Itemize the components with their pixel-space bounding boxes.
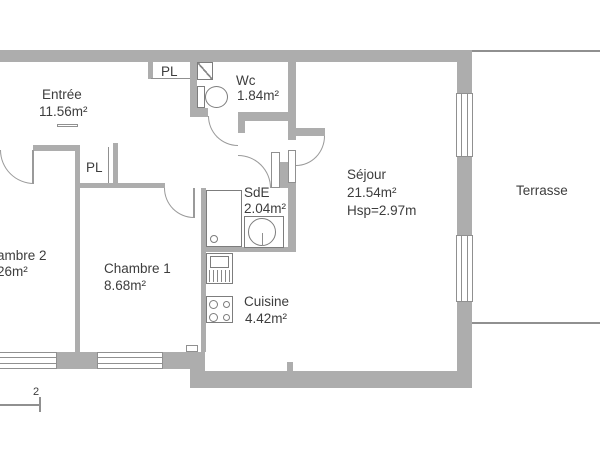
chambre1-area: 8.68m² — [104, 278, 146, 293]
toilet-tank-icon — [197, 86, 205, 108]
window-chambre2 — [0, 352, 57, 369]
entree-area: 11.56m² — [39, 104, 88, 119]
cuisine-area: 4.42m² — [245, 311, 287, 326]
sejour-ceiling-height: Hsp=2.97m — [347, 203, 416, 218]
sink-bowl-icon — [210, 256, 229, 268]
sink-drainer-icon — [209, 270, 230, 282]
burner-icon — [209, 300, 218, 309]
burner-icon — [223, 314, 230, 321]
chambre1-label: Chambre 1 — [104, 261, 171, 276]
window-chambre1 — [97, 352, 163, 369]
technical-shaft-icon — [197, 62, 213, 80]
sde-label: SdE — [244, 185, 270, 200]
floor-plan: 2 Entrée 11.56m² PL PL Wc 1.84m² Séjour … — [0, 0, 600, 450]
chambre2-label: ambre 2 — [0, 248, 47, 263]
sde-area: 2.04m² — [244, 201, 286, 216]
toilet-bowl-icon — [205, 86, 228, 108]
sejour-label: Séjour — [347, 167, 386, 182]
closet-top-label: PL — [161, 64, 178, 79]
wall-bottom-pier-2 — [163, 352, 193, 369]
scale-tick — [39, 397, 41, 412]
exterior-wall-bottom — [190, 371, 472, 388]
scale-value: 2 — [33, 385, 39, 400]
fridge-knob-icon — [210, 235, 218, 243]
closet-hall-front-line — [108, 147, 109, 183]
wall-entree-chambre2 — [33, 145, 80, 151]
wall-closet-hall-right — [113, 143, 118, 188]
scale-line — [0, 404, 40, 406]
wall-bottom-pier-1 — [57, 352, 97, 369]
door-arc-chambre1 — [164, 188, 194, 218]
shower-stem-icon — [262, 233, 263, 246]
terrace-bottom-line — [472, 322, 600, 324]
door-leaf-chambre2 — [32, 150, 34, 184]
door-arc-chambre2 — [0, 150, 34, 184]
wc-area: 1.84m² — [237, 88, 279, 103]
door-arc-wc — [208, 116, 238, 146]
wall-wc-jamb — [238, 112, 245, 133]
burner-icon — [223, 301, 230, 308]
terrasse-label: Terrasse — [516, 183, 568, 198]
door-leaf-chambre1 — [193, 188, 195, 218]
burner-icon — [209, 313, 218, 322]
sejour-area: 21.54m² — [347, 185, 397, 200]
wall-chambre1-top — [77, 183, 165, 188]
cuisine-label: Cuisine — [244, 294, 289, 309]
entree-label: Entrée — [42, 87, 82, 102]
wall-chambre2-chambre1 — [75, 145, 80, 352]
radiator-entree — [57, 124, 78, 127]
closet-hall-label: PL — [86, 160, 103, 175]
wall-kitchen-bottom-stub — [287, 362, 293, 373]
door-arc-sde — [238, 155, 271, 188]
wall-closet-top-stub — [148, 62, 153, 79]
wall-sejour-door-stub — [296, 128, 325, 136]
exterior-wall-top — [0, 50, 457, 62]
chambre2-area: 26m² — [0, 264, 28, 279]
wall-sde-right — [288, 183, 296, 252]
wall-cap — [186, 345, 198, 352]
wc-label: Wc — [236, 73, 256, 88]
window-sejour-lower — [456, 235, 473, 302]
door-arc-sejour — [296, 136, 325, 166]
terrace-top-line — [472, 50, 600, 52]
wall-wc-bottom-stub — [190, 108, 208, 117]
door-leaf-sde — [271, 152, 280, 188]
door-jamb-sejour — [288, 150, 296, 183]
wall-sejour-west-upper — [288, 62, 296, 140]
wall-bottom-step — [190, 352, 205, 371]
wall-sde-north-chunk — [280, 162, 288, 188]
window-sejour-upper — [456, 93, 473, 157]
